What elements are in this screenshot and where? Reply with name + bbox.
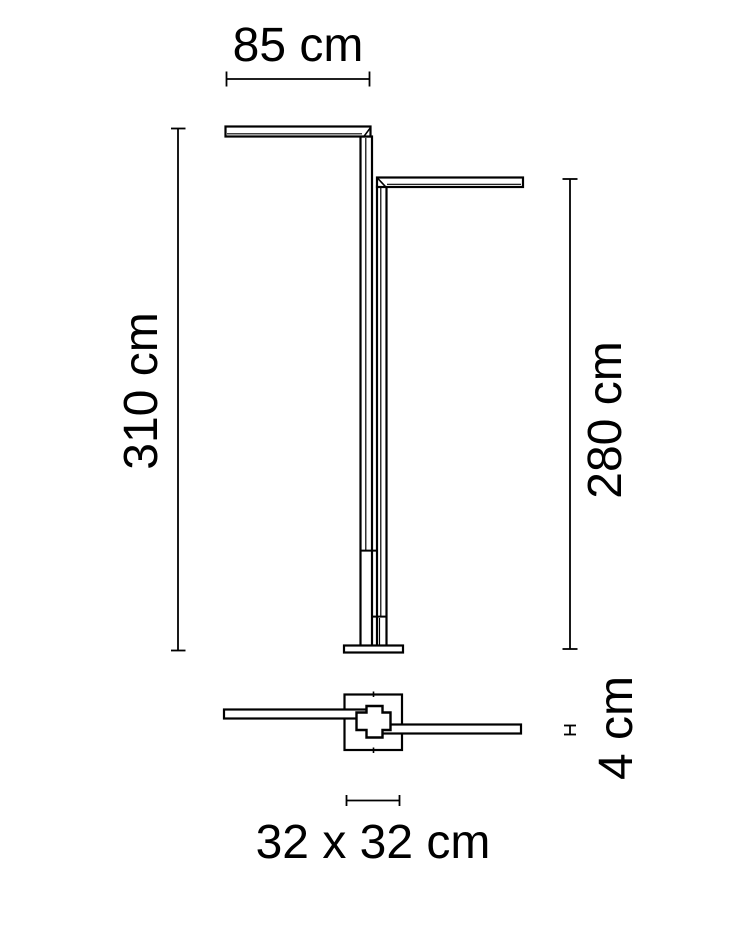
label-base-thickness: 4 cm (590, 676, 643, 780)
detail-lines (227, 127, 521, 645)
lamp-dimension-drawing-svg: 85 cm 310 cm 280 cm (0, 0, 750, 938)
dimension-base-plate (347, 795, 400, 806)
right-arm (377, 178, 523, 188)
right-arm-top (378, 725, 521, 734)
dimension-height-primary (171, 129, 186, 651)
base-plate-side (344, 646, 403, 653)
top-view (224, 692, 521, 754)
secondary-pole (377, 187, 387, 647)
dimension-height-secondary (563, 179, 578, 649)
left-arm-top (224, 710, 372, 719)
dimension-base-thickness (564, 726, 576, 735)
side-view (226, 127, 524, 653)
label-height-primary: 310 cm (115, 312, 168, 469)
label-arm-length: 85 cm (233, 19, 364, 72)
dimension-arm-length (227, 72, 370, 87)
dimension-diagram: 85 cm 310 cm 280 cm (0, 0, 750, 938)
label-height-secondary: 280 cm (579, 341, 632, 498)
label-base-plate: 32 x 32 cm (256, 816, 491, 869)
left-arm (226, 127, 371, 137)
